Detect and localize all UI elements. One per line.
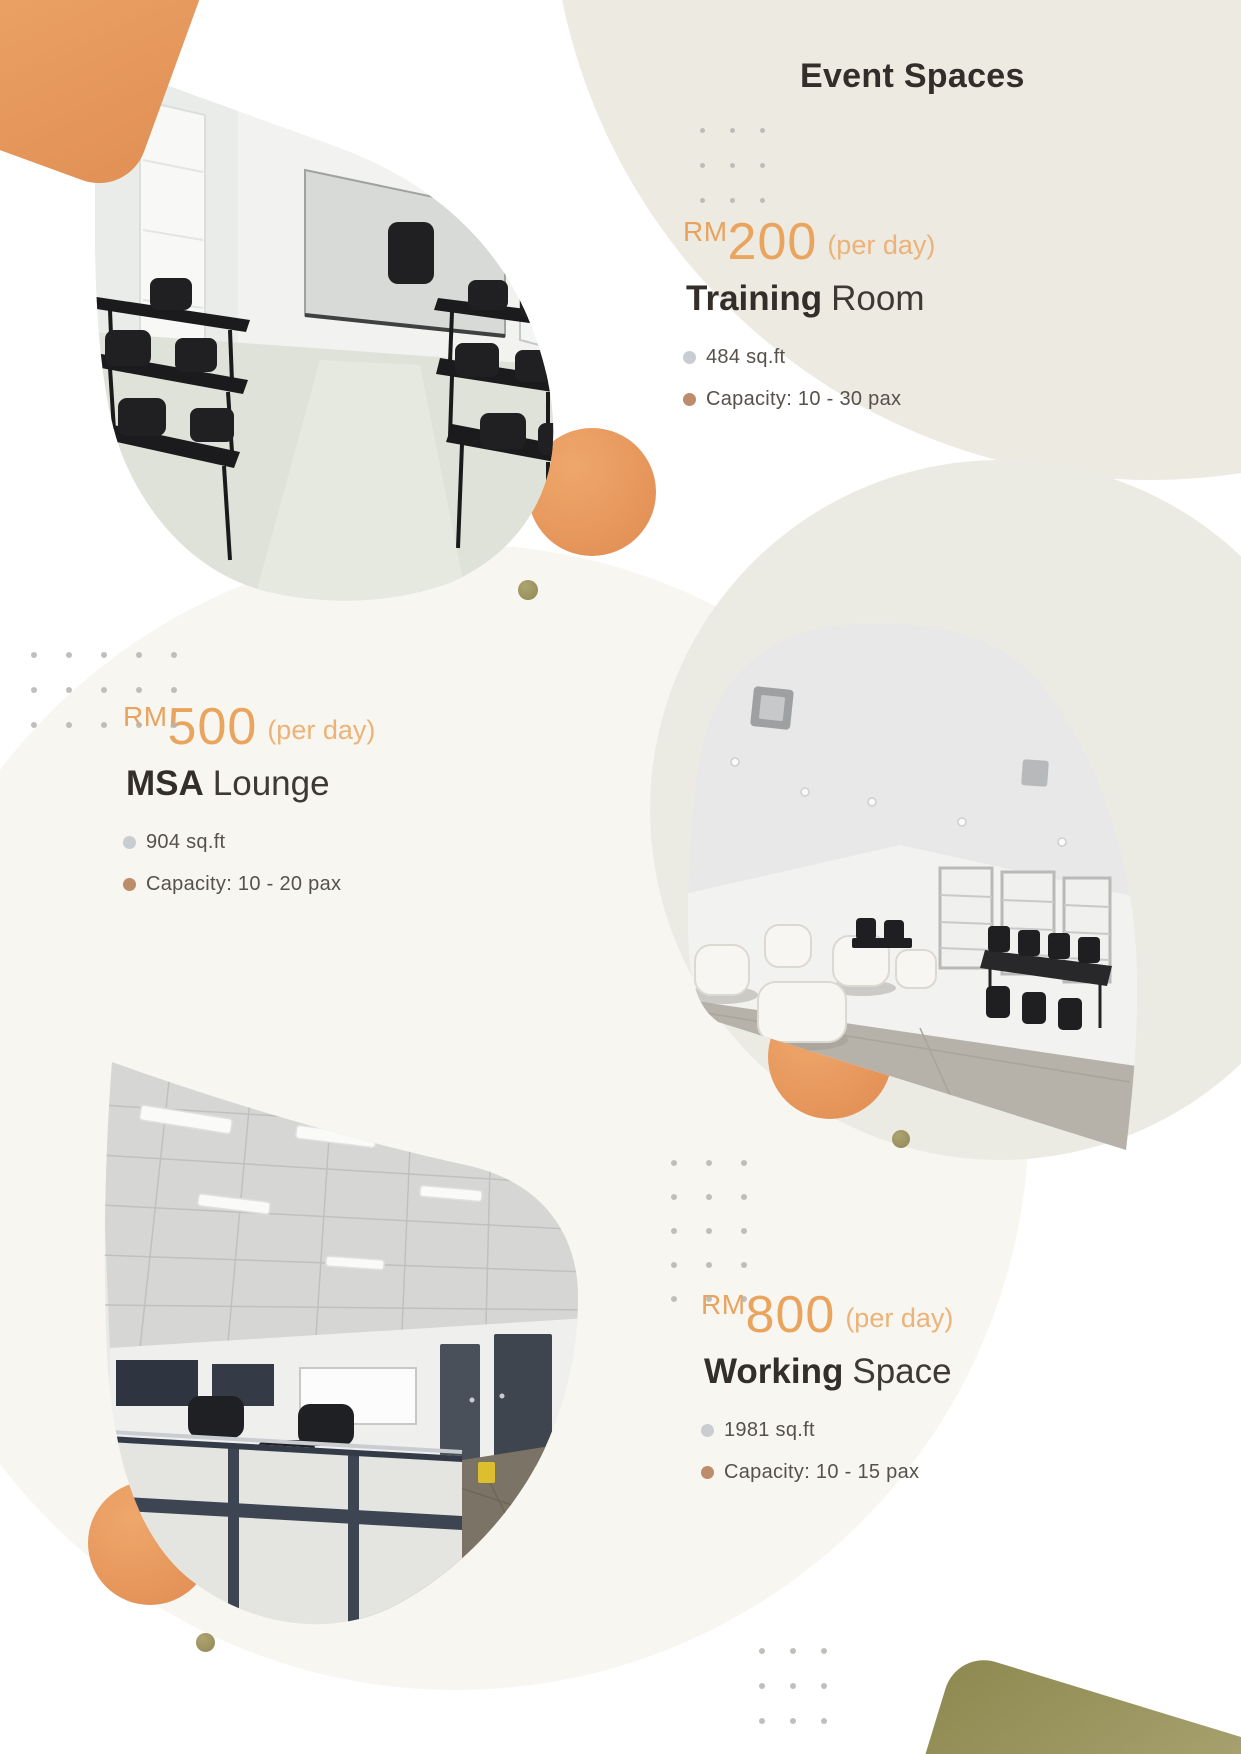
section-msa-lounge: RM 500 (per day) MSALounge 904 sq.ft Cap… xyxy=(123,701,375,896)
area-value: 1981 sq.ft xyxy=(724,1419,815,1442)
price-period: (per day) xyxy=(267,701,375,744)
area-row: 904 sq.ft xyxy=(123,831,375,854)
section-training-room: RM 200 (per day) TrainingRoom 484 sq.ft … xyxy=(683,216,935,411)
olive-dot-training xyxy=(518,580,538,600)
currency-label: RM xyxy=(123,701,168,731)
area-row: 1981 sq.ft xyxy=(701,1419,953,1442)
capacity-value: Capacity: 10 - 15 pax xyxy=(724,1461,919,1484)
area-bullet-icon xyxy=(123,836,136,849)
price-period: (per day) xyxy=(845,1289,953,1332)
room-title-regular: Space xyxy=(852,1352,951,1391)
page-title: Event Spaces xyxy=(800,57,1030,96)
price-amount: 200 xyxy=(728,216,818,268)
section-working-space: RM 800 (per day) WorkingSpace 1981 sq.ft… xyxy=(701,1289,953,1484)
capacity-bullet-icon xyxy=(701,1466,714,1479)
capacity-row: Capacity: 10 - 15 pax xyxy=(701,1461,953,1484)
price-amount: 500 xyxy=(168,701,258,753)
olive-corner-shape xyxy=(840,1650,1241,1754)
working-space-photo xyxy=(98,1050,588,1625)
area-value: 484 sq.ft xyxy=(706,346,785,369)
msa-lounge-photo xyxy=(680,615,1150,1160)
area-row: 484 sq.ft xyxy=(683,346,935,369)
capacity-value: Capacity: 10 - 20 pax xyxy=(146,873,341,896)
training-room-photo xyxy=(88,48,568,613)
room-title-regular: Room xyxy=(831,279,924,318)
capacity-row: Capacity: 10 - 20 pax xyxy=(123,873,375,896)
price-training-room: RM 200 (per day) xyxy=(683,216,935,268)
capacity-bullet-icon xyxy=(123,878,136,891)
area-bullet-icon xyxy=(701,1424,714,1437)
capacity-row: Capacity: 10 - 30 pax xyxy=(683,388,935,411)
capacity-bullet-icon xyxy=(683,393,696,406)
area-value: 904 sq.ft xyxy=(146,831,225,854)
currency-label: RM xyxy=(701,1289,746,1319)
room-title: WorkingSpace xyxy=(704,1352,953,1392)
olive-dot-working xyxy=(196,1633,215,1652)
price-msa-lounge: RM 500 (per day) xyxy=(123,701,375,753)
price-period: (per day) xyxy=(827,216,935,259)
room-title: TrainingRoom xyxy=(686,279,935,319)
olive-dot-lounge xyxy=(892,1130,910,1148)
price-amount: 800 xyxy=(746,1289,836,1341)
room-title-regular: Lounge xyxy=(213,764,330,803)
currency-label: RM xyxy=(683,216,728,246)
price-working-space: RM 800 (per day) xyxy=(701,1289,953,1341)
room-title-bold: Training xyxy=(686,279,822,318)
room-title-bold: Working xyxy=(704,1352,843,1391)
room-title-bold: MSA xyxy=(126,764,204,803)
area-bullet-icon xyxy=(683,351,696,364)
room-title: MSALounge xyxy=(126,764,375,804)
flyer-page: Event Spaces RM 200 (per day) TrainingRo… xyxy=(0,0,1241,1754)
capacity-value: Capacity: 10 - 30 pax xyxy=(706,388,901,411)
